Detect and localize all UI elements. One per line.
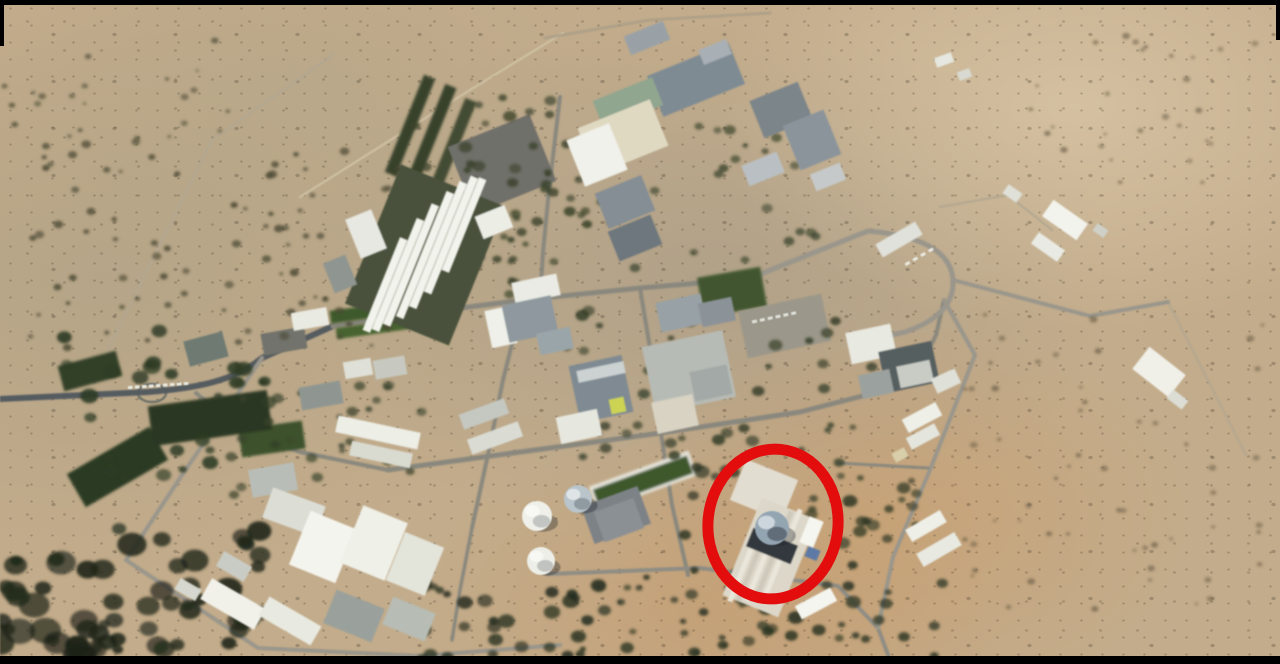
letterbox-corner-left xyxy=(0,0,4,46)
satellite-image xyxy=(0,0,1280,664)
screenshot-root xyxy=(0,0,1280,664)
letterbox-bottom xyxy=(0,656,1280,664)
letterbox-corner-right xyxy=(1276,0,1280,40)
annotation-circle xyxy=(701,443,846,606)
letterbox-top xyxy=(0,0,1280,5)
annotation-layer xyxy=(0,0,1280,664)
